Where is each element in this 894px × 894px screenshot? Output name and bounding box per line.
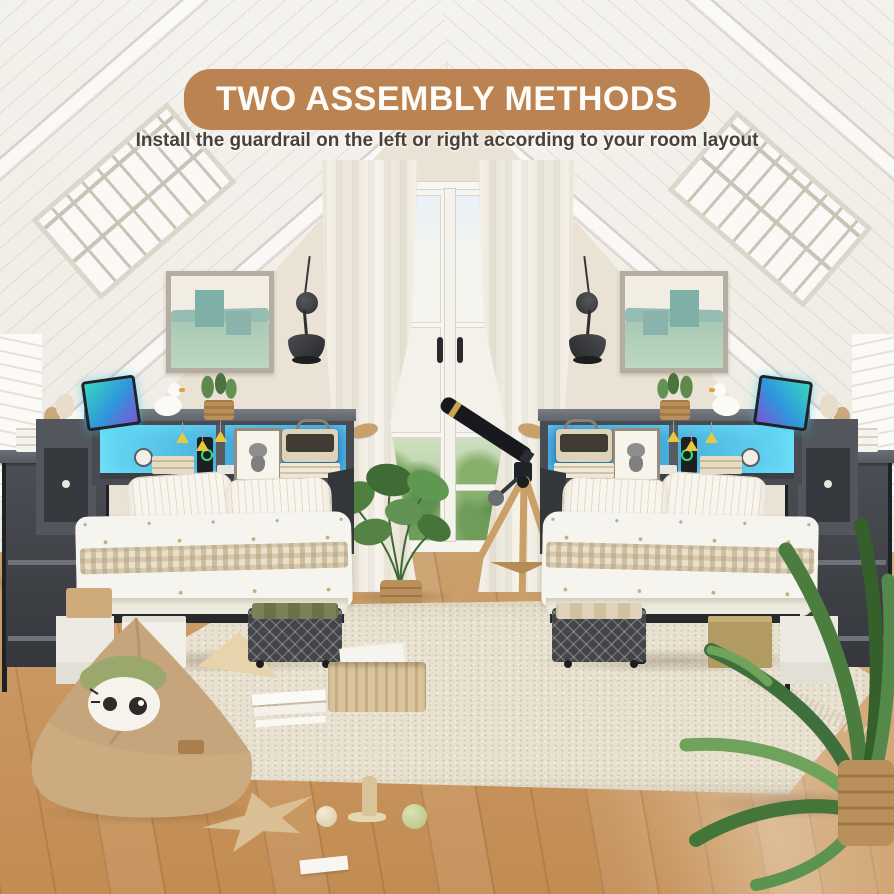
goose-lamp-beak bbox=[709, 388, 715, 392]
small-plant bbox=[650, 370, 702, 404]
woven-basket bbox=[328, 662, 426, 712]
wall-art-block bbox=[643, 311, 668, 335]
toy-ball-green bbox=[402, 804, 427, 829]
product-marketing-image: Marshall Marshall bbox=[0, 0, 894, 894]
sloth-picture-frame bbox=[612, 428, 660, 482]
sconce-lamp-mount bbox=[576, 292, 598, 314]
large-palm-plant bbox=[656, 430, 894, 894]
basket-caster bbox=[630, 660, 638, 668]
folded-towels bbox=[556, 603, 642, 619]
sloth-illustration bbox=[629, 456, 642, 472]
title-banner: TWO ASSEMBLY METHODS bbox=[184, 69, 710, 130]
speaker-brand-label: Marshall bbox=[288, 441, 336, 449]
toy-ball-cream bbox=[316, 806, 337, 827]
wall-art bbox=[620, 271, 728, 373]
banner-subtitle-text: Install the guardrail on the left or rig… bbox=[0, 130, 894, 152]
wooden-toy bbox=[362, 776, 377, 816]
plant-basket-pot bbox=[660, 400, 690, 420]
banner-title-text: TWO ASSEMBLY METHODS bbox=[216, 80, 678, 119]
basket-caster bbox=[564, 660, 572, 668]
deer-toy bbox=[820, 394, 838, 418]
tablet-device bbox=[753, 374, 813, 431]
sconce-lamp-shade bbox=[573, 356, 602, 364]
wall-art-sea bbox=[625, 322, 723, 368]
speaker-brand-label: Marshall bbox=[558, 441, 606, 449]
wall-art-block bbox=[670, 290, 699, 327]
bean-bag-chair bbox=[18, 612, 270, 824]
